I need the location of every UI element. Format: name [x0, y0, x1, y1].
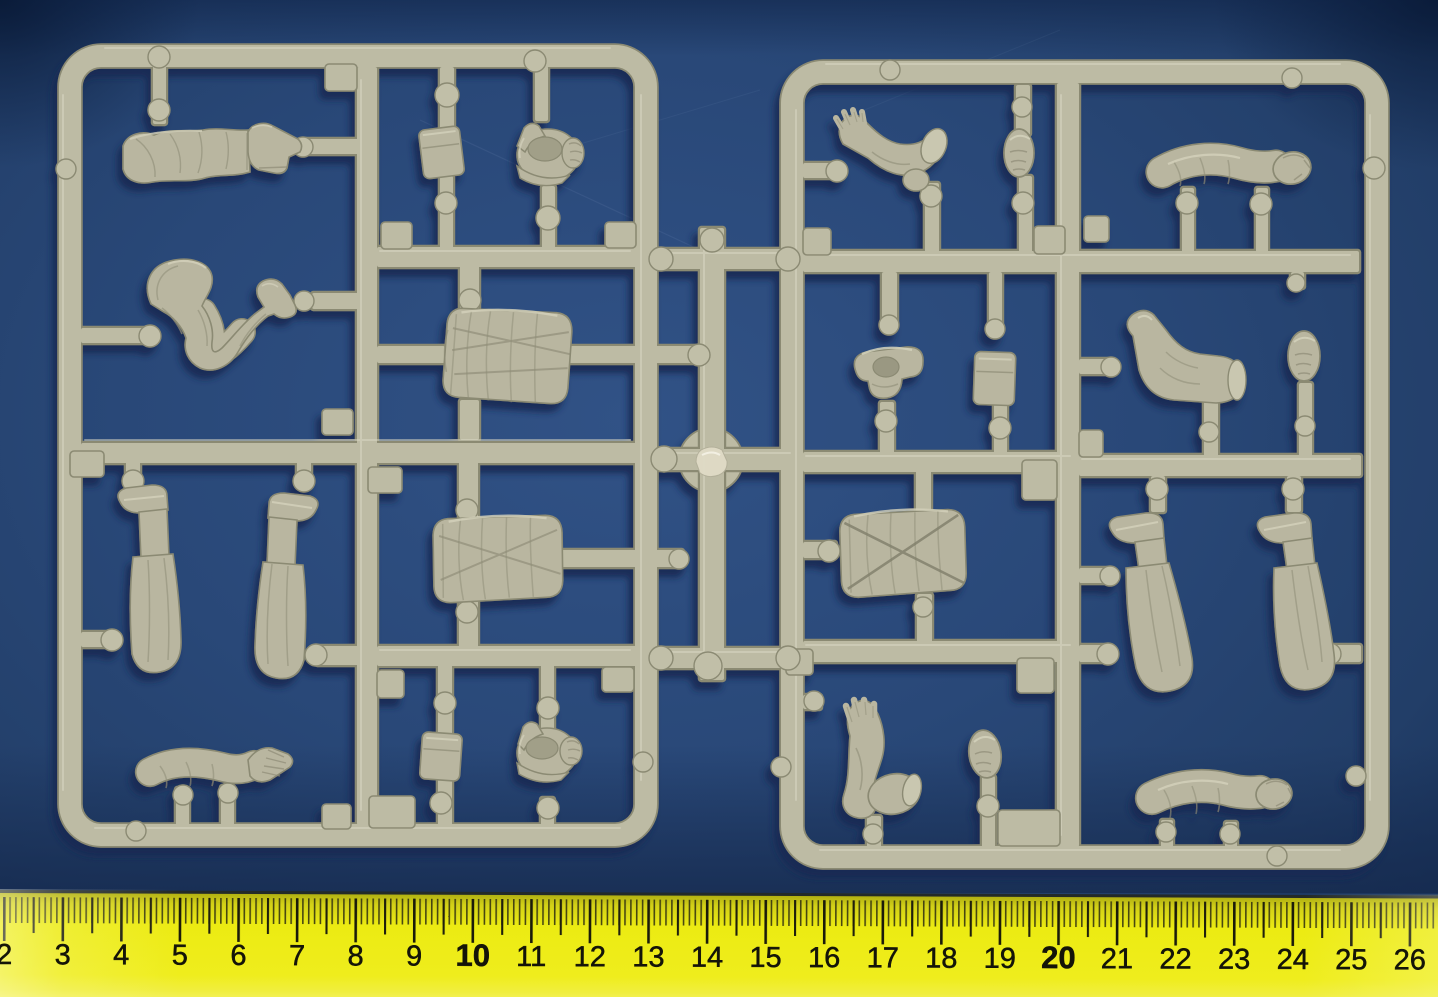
svg-text:15: 15	[749, 942, 781, 974]
svg-text:25: 25	[1335, 944, 1367, 976]
svg-text:12: 12	[574, 941, 606, 973]
svg-text:17: 17	[867, 942, 899, 974]
svg-text:26: 26	[1394, 944, 1426, 976]
svg-text:18: 18	[925, 943, 957, 975]
svg-text:4: 4	[113, 939, 129, 971]
svg-text:22: 22	[1159, 943, 1191, 975]
svg-text:9: 9	[406, 941, 422, 973]
svg-text:20: 20	[1041, 940, 1076, 975]
svg-text:7: 7	[289, 940, 305, 972]
svg-text:5: 5	[172, 940, 188, 972]
svg-text:3: 3	[55, 939, 71, 971]
svg-text:6: 6	[230, 940, 246, 972]
svg-text:10: 10	[455, 938, 490, 973]
svg-text:14: 14	[691, 942, 723, 974]
svg-text:19: 19	[984, 943, 1016, 975]
svg-text:24: 24	[1277, 944, 1309, 976]
svg-text:21: 21	[1101, 943, 1133, 975]
svg-text:8: 8	[347, 940, 363, 972]
svg-text:11: 11	[516, 941, 546, 973]
svg-text:23: 23	[1218, 944, 1250, 976]
svg-text:16: 16	[808, 942, 840, 974]
svg-text:2: 2	[0, 939, 12, 971]
svg-text:13: 13	[632, 941, 664, 973]
